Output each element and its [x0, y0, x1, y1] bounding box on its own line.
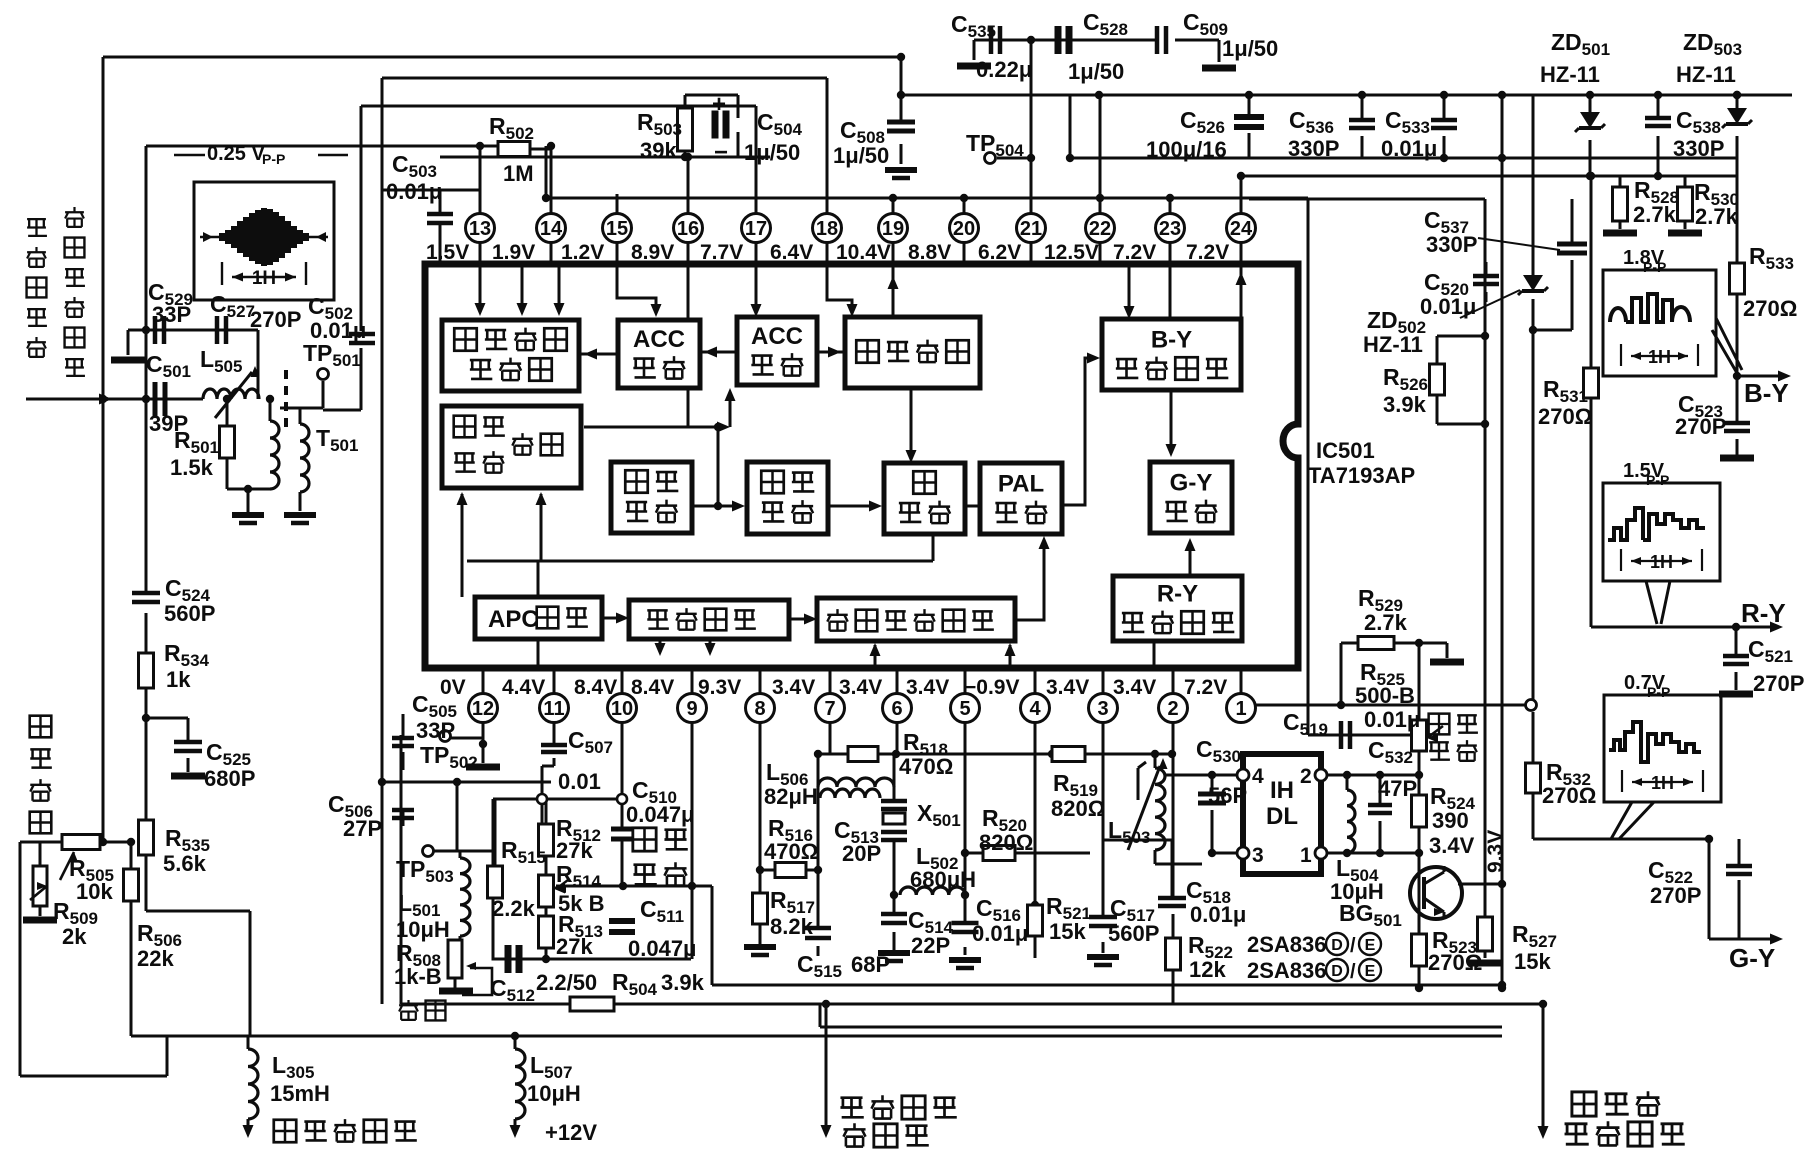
- svg-text:/: /: [1350, 961, 1356, 983]
- svg-text:8.9V: 8.9V: [631, 241, 674, 264]
- svg-text:24: 24: [1230, 218, 1253, 240]
- svg-text:1.9V: 1.9V: [492, 241, 535, 264]
- svg-text:1k: 1k: [166, 667, 191, 692]
- svg-text:15k: 15k: [1049, 919, 1086, 944]
- svg-text:7: 7: [824, 698, 835, 720]
- svg-text:13: 13: [469, 218, 491, 240]
- svg-text:DL: DL: [1266, 803, 1298, 830]
- svg-text:1: 1: [1300, 844, 1312, 867]
- svg-text:+: +: [712, 91, 726, 118]
- svg-text:HZ-11: HZ-11: [1540, 62, 1600, 87]
- svg-text:1H: 1H: [1651, 773, 1674, 793]
- svg-text:P-P: P-P: [1643, 259, 1666, 275]
- svg-text:20P: 20P: [842, 841, 881, 866]
- svg-text:10μH: 10μH: [396, 917, 450, 942]
- svg-text:1H: 1H: [1648, 347, 1671, 367]
- svg-text:9.3V: 9.3V: [698, 676, 741, 699]
- svg-text:6: 6: [891, 698, 902, 720]
- svg-text:560P: 560P: [1108, 921, 1159, 946]
- svg-text:27k: 27k: [556, 838, 593, 863]
- svg-text:270Ω: 270Ω: [1542, 783, 1596, 808]
- svg-text:12.5V: 12.5V: [1044, 241, 1099, 264]
- svg-text:3.9k: 3.9k: [1383, 392, 1427, 417]
- svg-text:0.22μ: 0.22μ: [976, 57, 1032, 82]
- svg-text:27P: 27P: [343, 816, 382, 841]
- svg-text:560P: 560P: [164, 601, 215, 626]
- svg-text:−: −: [714, 139, 728, 166]
- svg-text:68P: 68P: [851, 952, 890, 977]
- svg-text:3.4V: 3.4V: [772, 676, 815, 699]
- svg-text:HZ-11: HZ-11: [1676, 62, 1736, 87]
- svg-text:33P: 33P: [152, 302, 191, 327]
- svg-text:330P: 330P: [1288, 136, 1339, 161]
- svg-text:9: 9: [686, 698, 697, 720]
- svg-text:9.3V: 9.3V: [1484, 830, 1507, 873]
- svg-text:TA7193AP: TA7193AP: [1308, 463, 1415, 488]
- svg-text:7.2V: 7.2V: [1113, 241, 1156, 264]
- svg-text:82μH: 82μH: [764, 784, 818, 809]
- svg-text:1.5k: 1.5k: [170, 455, 214, 480]
- svg-text:2.7k: 2.7k: [1633, 202, 1677, 227]
- svg-text:0.01μ: 0.01μ: [1420, 294, 1476, 319]
- svg-text:3.9k: 3.9k: [661, 970, 705, 995]
- svg-text:270P: 270P: [1753, 671, 1804, 696]
- svg-text:1μ/50: 1μ/50: [833, 143, 889, 168]
- svg-text:ACC: ACC: [633, 326, 685, 353]
- svg-text:820Ω: 820Ω: [979, 830, 1033, 855]
- svg-text:820Ω: 820Ω: [1051, 796, 1105, 821]
- svg-text:1μ/50: 1μ/50: [744, 140, 800, 165]
- svg-text:270Ω: 270Ω: [1743, 296, 1797, 321]
- svg-text:G-Y: G-Y: [1170, 470, 1213, 497]
- svg-text:1μ/50: 1μ/50: [1068, 59, 1124, 84]
- svg-text:14: 14: [540, 218, 563, 240]
- svg-text:330P: 330P: [1673, 136, 1724, 161]
- svg-text:7.7V: 7.7V: [700, 241, 743, 264]
- svg-text:D: D: [1331, 963, 1343, 980]
- svg-text:6.2V: 6.2V: [978, 241, 1021, 264]
- svg-text:0.01μ: 0.01μ: [972, 921, 1028, 946]
- svg-text:12k: 12k: [1189, 957, 1226, 982]
- svg-text:8.4V: 8.4V: [574, 676, 617, 699]
- svg-text:2: 2: [1300, 765, 1312, 788]
- svg-text:P-P: P-P: [1646, 472, 1669, 488]
- svg-text:0.01μ: 0.01μ: [386, 179, 442, 204]
- svg-text:APC: APC: [488, 606, 539, 633]
- svg-text:33P: 33P: [416, 718, 455, 743]
- svg-text:4.4V: 4.4V: [502, 676, 545, 699]
- svg-text:0.01: 0.01: [558, 769, 601, 794]
- svg-text:P-P: P-P: [1647, 684, 1670, 700]
- svg-text:0V: 0V: [440, 676, 466, 699]
- svg-text:10μH: 10μH: [527, 1081, 581, 1106]
- svg-text:1.2V: 1.2V: [561, 241, 604, 264]
- svg-text:HZ-11: HZ-11: [1363, 332, 1423, 357]
- svg-text:0.01μ: 0.01μ: [1381, 136, 1437, 161]
- svg-text:1k-B: 1k-B: [394, 964, 442, 989]
- svg-text:E: E: [1365, 937, 1376, 954]
- svg-text:20: 20: [953, 218, 975, 240]
- svg-text:PAL: PAL: [998, 471, 1044, 498]
- svg-text:5.6k: 5.6k: [163, 851, 207, 876]
- svg-text:47P: 47P: [1378, 776, 1417, 801]
- svg-text:8.4V: 8.4V: [631, 676, 674, 699]
- svg-text:16: 16: [677, 218, 699, 240]
- svg-text:R-Y: R-Y: [1157, 581, 1198, 608]
- svg-text:390: 390: [1432, 808, 1469, 833]
- svg-text:18: 18: [816, 218, 838, 240]
- svg-text:8.2k: 8.2k: [770, 914, 814, 939]
- svg-text:15: 15: [606, 218, 628, 240]
- svg-text:4: 4: [1252, 765, 1264, 788]
- svg-text:2: 2: [1167, 698, 1178, 720]
- svg-text:270P: 270P: [250, 307, 301, 332]
- svg-text:6.4V: 6.4V: [770, 241, 813, 264]
- svg-text:2k: 2k: [62, 924, 87, 949]
- svg-text:680P: 680P: [204, 766, 255, 791]
- svg-text:470Ω: 470Ω: [764, 839, 818, 864]
- svg-text:270Ω: 270Ω: [1538, 404, 1592, 429]
- svg-text:22P: 22P: [911, 933, 950, 958]
- svg-text:0.047μ: 0.047μ: [628, 936, 697, 961]
- svg-text:470Ω: 470Ω: [899, 754, 953, 779]
- svg-text:2SA836: 2SA836: [1247, 958, 1327, 983]
- svg-text:270P: 270P: [1650, 883, 1701, 908]
- svg-text:ACC: ACC: [751, 323, 803, 350]
- svg-text:/: /: [1350, 935, 1356, 957]
- svg-text:B-Y: B-Y: [1744, 378, 1789, 408]
- svg-text:21: 21: [1020, 218, 1042, 240]
- svg-text:10k: 10k: [76, 879, 113, 904]
- svg-text:3: 3: [1252, 844, 1264, 867]
- svg-text:15mH: 15mH: [270, 1081, 330, 1106]
- svg-text:E: E: [1365, 963, 1376, 980]
- svg-text:10: 10: [611, 698, 633, 720]
- svg-text:2.7k: 2.7k: [1364, 610, 1408, 635]
- svg-text:+12V: +12V: [545, 1120, 597, 1145]
- svg-text:IC501: IC501: [1316, 438, 1375, 463]
- svg-text:R-Y: R-Y: [1741, 598, 1786, 628]
- svg-text:0.01μ: 0.01μ: [1364, 707, 1420, 732]
- svg-text:D: D: [1331, 937, 1343, 954]
- svg-text:4: 4: [1029, 698, 1041, 720]
- svg-text:P-P: P-P: [262, 151, 285, 167]
- svg-text:22k: 22k: [137, 946, 174, 971]
- svg-text:2.2k: 2.2k: [492, 896, 536, 921]
- svg-text:G-Y: G-Y: [1729, 943, 1775, 973]
- svg-text:1μ/50: 1μ/50: [1222, 36, 1278, 61]
- svg-text:2.7k: 2.7k: [1695, 204, 1739, 229]
- svg-text:19: 19: [882, 218, 904, 240]
- svg-text:680μH: 680μH: [910, 867, 976, 892]
- svg-text:2SA836: 2SA836: [1247, 932, 1327, 957]
- svg-text:3.4V: 3.4V: [1046, 676, 1089, 699]
- svg-text:0.01μ: 0.01μ: [1190, 902, 1246, 927]
- svg-text:7.2V: 7.2V: [1186, 241, 1229, 264]
- svg-text:0.047μ: 0.047μ: [626, 802, 695, 827]
- svg-text:3: 3: [1097, 698, 1108, 720]
- svg-text:3.4V: 3.4V: [839, 676, 882, 699]
- svg-text:270Ω: 270Ω: [1428, 950, 1482, 975]
- svg-text:11: 11: [543, 698, 564, 720]
- svg-text:12: 12: [472, 698, 494, 720]
- svg-text:−0.9V: −0.9V: [964, 676, 1019, 699]
- svg-text:23: 23: [1159, 218, 1181, 240]
- svg-text:IH: IH: [1270, 777, 1294, 804]
- svg-text:1H: 1H: [1650, 552, 1673, 572]
- svg-text:1.5V: 1.5V: [426, 241, 469, 264]
- svg-text:270P: 270P: [1675, 414, 1726, 439]
- svg-text:27k: 27k: [556, 934, 593, 959]
- svg-text:7.2V: 7.2V: [1184, 676, 1227, 699]
- svg-text:0.25 V: 0.25 V: [207, 143, 265, 165]
- svg-text:1H: 1H: [252, 268, 276, 289]
- svg-text:B-Y: B-Y: [1151, 327, 1192, 354]
- svg-text:15k: 15k: [1514, 949, 1551, 974]
- svg-text:3.4V: 3.4V: [1113, 676, 1156, 699]
- svg-text:8: 8: [754, 698, 765, 720]
- svg-text:39k: 39k: [640, 138, 677, 163]
- svg-text:330P: 330P: [1426, 232, 1477, 257]
- svg-text:2.2/50: 2.2/50: [536, 970, 597, 995]
- svg-text:22: 22: [1089, 218, 1111, 240]
- svg-text:5: 5: [959, 698, 970, 720]
- svg-text:10.4V: 10.4V: [836, 241, 891, 264]
- svg-text:1M: 1M: [503, 161, 534, 186]
- svg-text:56P: 56P: [1208, 783, 1247, 808]
- svg-text:100μ/16: 100μ/16: [1146, 137, 1227, 162]
- svg-text:500-B: 500-B: [1355, 683, 1415, 708]
- svg-text:3.4V: 3.4V: [906, 676, 949, 699]
- svg-text:8.8V: 8.8V: [908, 241, 951, 264]
- svg-text:1: 1: [1235, 698, 1246, 720]
- svg-text:3.4V: 3.4V: [1429, 833, 1475, 858]
- svg-text:17: 17: [745, 218, 767, 240]
